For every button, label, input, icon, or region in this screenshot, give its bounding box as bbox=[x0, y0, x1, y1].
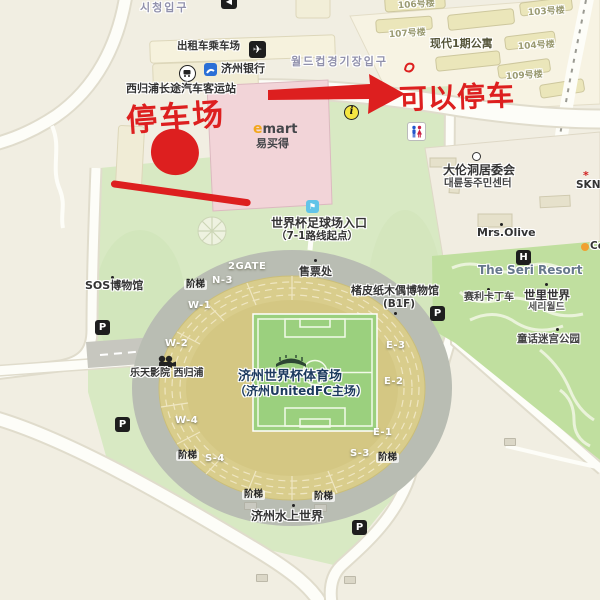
parking-glyph: P bbox=[99, 322, 106, 333]
puppet-museum-dot-icon bbox=[394, 312, 397, 315]
bus-terminal-icon bbox=[179, 65, 196, 82]
edge-poi-icon bbox=[581, 243, 589, 251]
stadium-entrance-icon: ⚑ bbox=[306, 200, 319, 213]
seri-world-dot-icon bbox=[545, 283, 548, 286]
label-gate-w2: W-2 bbox=[165, 338, 188, 349]
annotation-can-park-text: 可以停车 bbox=[398, 74, 515, 118]
label-stadium-entrance-2: （7-1路线起点） bbox=[276, 231, 358, 243]
label-gate-e3: E-3 bbox=[386, 340, 405, 351]
parking-glyph: P bbox=[119, 419, 126, 430]
label-sos-museum: SOS博物馆 bbox=[85, 280, 143, 292]
parking-icon: P bbox=[115, 417, 130, 432]
label-lotte-cinema: 乐天影院 西归浦 bbox=[130, 368, 203, 379]
label-puppet-museum-1: 楮皮纸木偶博物馆 bbox=[351, 285, 439, 297]
small-building bbox=[344, 576, 356, 584]
label-stairs: 阶梯 bbox=[242, 490, 265, 500]
label-gate-n3: N-3 bbox=[212, 275, 233, 286]
label-seri-world-cn: 世里世界 bbox=[524, 289, 570, 302]
parking-icon: P bbox=[95, 320, 110, 335]
small-building bbox=[256, 574, 268, 582]
label-seri-world-kr: 세리월드 bbox=[528, 302, 565, 313]
station-icon: ◀ bbox=[221, 0, 237, 9]
label-gate-e2: E-2 bbox=[384, 376, 403, 387]
station-glyph: ◀ bbox=[226, 0, 232, 6]
emart-logo: emart bbox=[253, 122, 297, 137]
small-building bbox=[504, 438, 516, 446]
hotel-glyph: H bbox=[519, 252, 527, 263]
label-gate-s3: S-3 bbox=[350, 448, 370, 459]
committee-marker-icon bbox=[472, 152, 481, 161]
restroom-icon bbox=[407, 122, 426, 141]
label-gate-w4: W-4 bbox=[175, 415, 198, 426]
label-worldcup-entrance: 월드컵경기장입구 bbox=[291, 56, 388, 68]
rotunda bbox=[198, 217, 226, 245]
parking-icon: P bbox=[352, 520, 367, 535]
label-stairs: 阶梯 bbox=[176, 451, 199, 461]
parking-icon: P bbox=[430, 306, 445, 321]
ticket-office-dot-icon bbox=[314, 259, 317, 262]
jeju-bank-icon bbox=[204, 63, 217, 76]
label-seri-resort: The Seri Resort bbox=[478, 264, 582, 277]
label-gate-2gate: 2GATE bbox=[228, 261, 266, 272]
label-emart-cn: 易买得 bbox=[256, 138, 289, 150]
flag-glyph: ⚑ bbox=[309, 202, 316, 211]
label-stadium-name-2: （济州UnitedFC主场） bbox=[234, 385, 368, 398]
label-taxi-stand: 出租车乘车场 bbox=[177, 41, 240, 53]
label-stadium-name-1: 济州世界杯体育场 bbox=[238, 370, 342, 384]
label-edge-poi: Ce bbox=[590, 241, 600, 253]
parking-glyph: P bbox=[434, 308, 441, 319]
annotation-squiggle bbox=[402, 60, 418, 76]
label-committee-cn: 大伦洞居委会 bbox=[443, 164, 515, 177]
emart-logo-mart: mart bbox=[263, 122, 298, 137]
gokart-dot-icon bbox=[487, 288, 490, 291]
label-committee-kr: 대륜동주민센터 bbox=[444, 178, 512, 190]
maze-park-dot-icon bbox=[556, 328, 559, 331]
label-stadium-entrance-1: 世界杯足球场入口 bbox=[271, 217, 367, 230]
label-gate-s4: S-4 bbox=[205, 453, 225, 464]
parking-glyph: P bbox=[356, 522, 363, 533]
label-city-hall-entrance: 시청입구 bbox=[140, 2, 188, 14]
water-world-dot-icon bbox=[292, 504, 295, 507]
annotation-arrow bbox=[265, 68, 410, 118]
label-stairs: 阶梯 bbox=[184, 280, 207, 290]
airplane-glyph: ✈ bbox=[253, 43, 262, 56]
label-puppet-museum-2: (B1F) bbox=[383, 299, 415, 311]
label-water-world: 济州水上世界 bbox=[251, 510, 323, 523]
label-mrs-olive: Mrs.Olive bbox=[477, 227, 536, 239]
label-gate-w1: W-1 bbox=[188, 300, 211, 311]
label-gate-e1: E-1 bbox=[373, 427, 392, 438]
label-stairs: 阶梯 bbox=[312, 492, 335, 502]
label-gokart: 赛利卡丁车 bbox=[464, 292, 514, 303]
label-sk: SKN bbox=[576, 180, 600, 192]
label-maze-park: 童话迷宫公园 bbox=[517, 334, 580, 346]
label-jeju-bank: 济州银行 bbox=[221, 63, 265, 75]
label-hyundai-apartments: 现代1期公寓 bbox=[430, 38, 493, 50]
map-canvas[interactable]: ◀ ✈ i H P P P P ⚑ 시청입구 월드컵경기장입구 出租车乘车场 济… bbox=[0, 0, 600, 600]
emart-logo-e: e bbox=[253, 121, 263, 137]
airport-limousine-icon: ✈ bbox=[249, 41, 266, 58]
label-stairs: 阶梯 bbox=[376, 453, 399, 463]
label-ticket-office: 售票处 bbox=[299, 266, 332, 278]
